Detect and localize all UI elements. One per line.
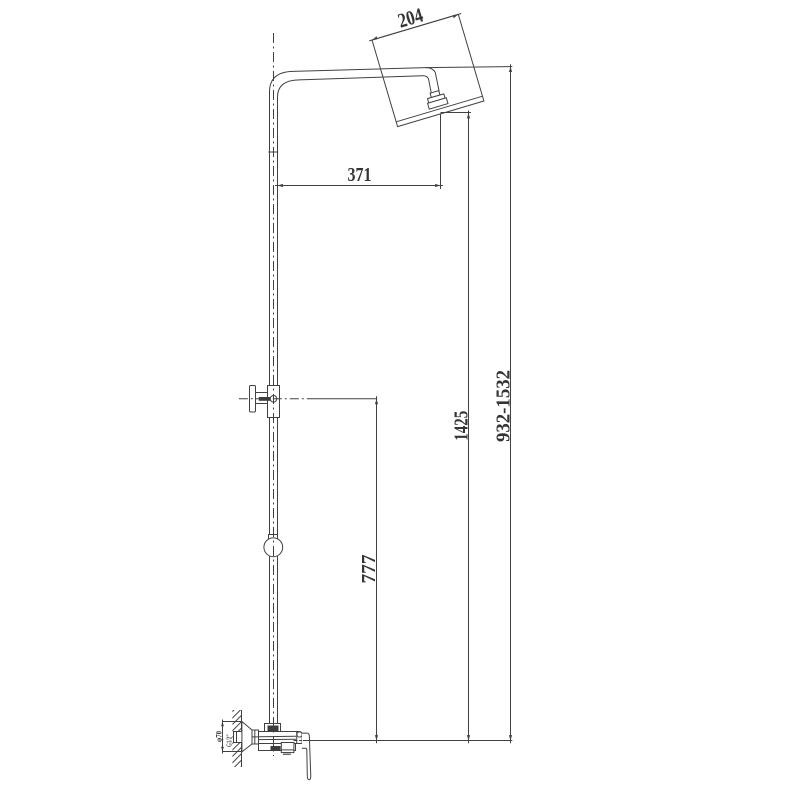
svg-text:777: 777 [358, 555, 380, 584]
svg-text:φ70: φ70 [214, 731, 223, 742]
svg-text:1425: 1425 [450, 411, 472, 441]
svg-text:371: 371 [348, 164, 372, 186]
svg-text:932-1532: 932-1532 [492, 370, 514, 442]
svg-text:G1/2″: G1/2″ [224, 734, 233, 747]
svg-text:204: 204 [396, 4, 426, 32]
